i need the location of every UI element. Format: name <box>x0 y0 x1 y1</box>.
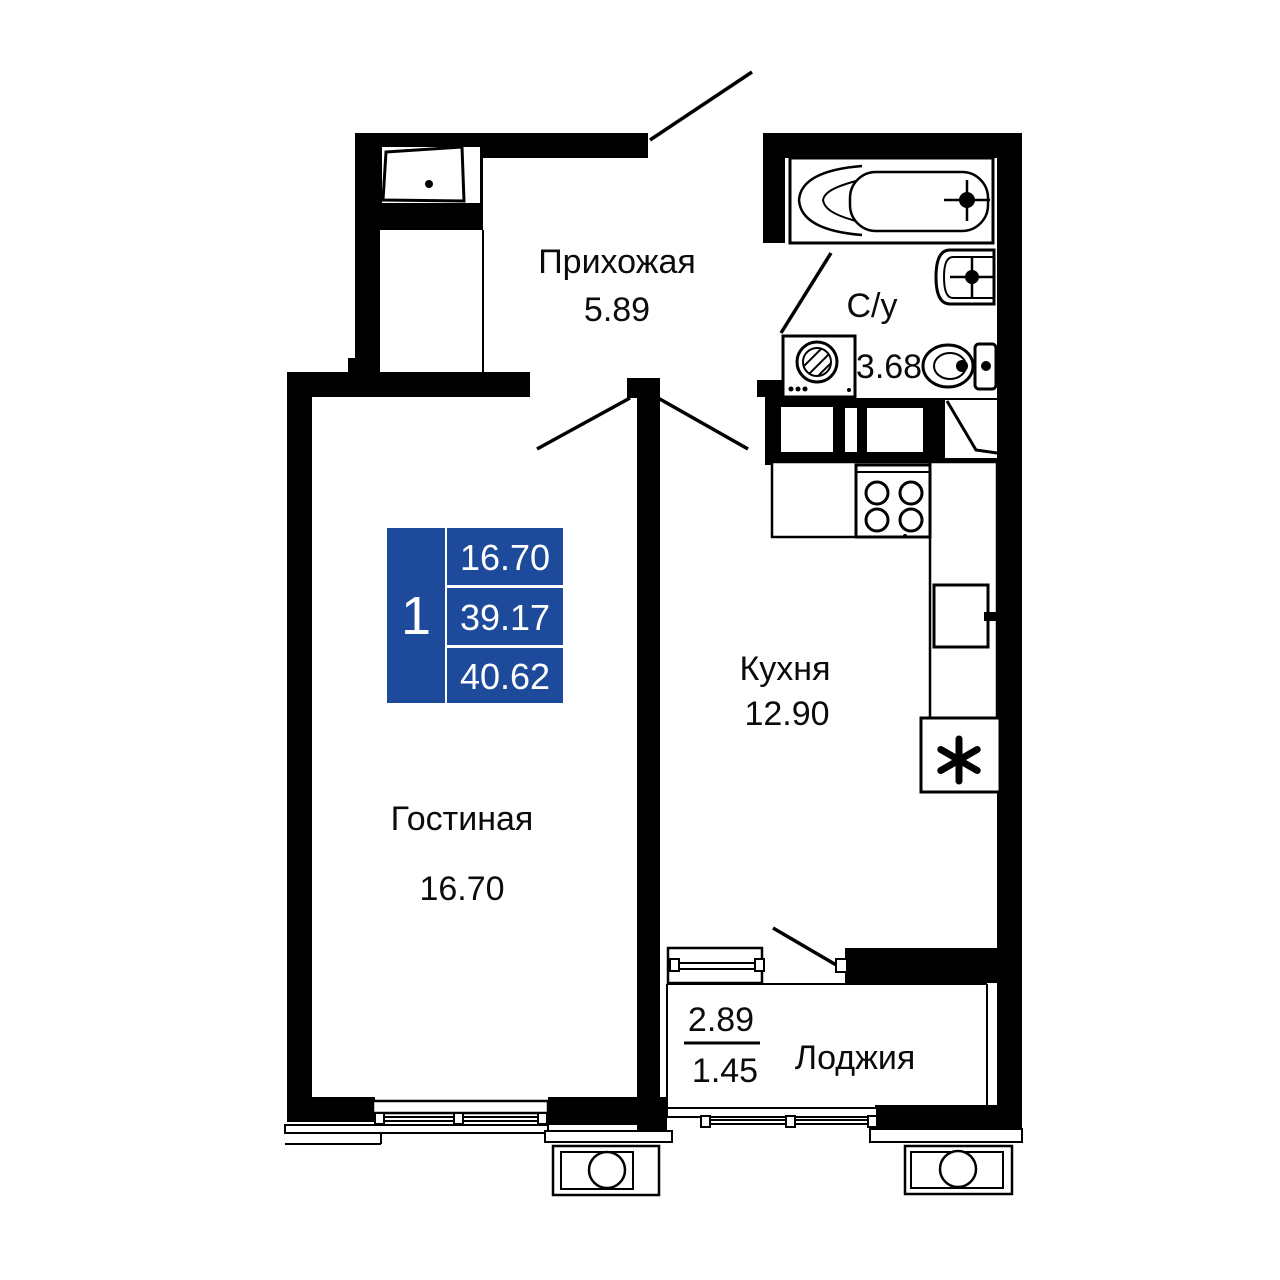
living-door-swing <box>537 398 630 449</box>
shaft-opening <box>781 407 833 452</box>
legend-table: 1 16.70 39.17 40.62 <box>387 528 563 703</box>
fridge-icon: * <box>921 718 1000 792</box>
wall <box>287 1097 375 1122</box>
legend-total-area: 40.62 <box>460 656 550 697</box>
legend-area-without-loggia: 39.17 <box>460 597 550 638</box>
loggia-area-full: 2.89 <box>688 1001 754 1039</box>
washing-machine-icon <box>783 336 855 397</box>
room-area-kitchen: 12.90 <box>744 695 829 733</box>
wall <box>548 1097 637 1125</box>
ac-unit-icon <box>905 1146 1012 1194</box>
ac-unit-icon <box>553 1146 659 1195</box>
loggia-left-window-icon <box>668 948 764 983</box>
loggia-door-hinge <box>836 959 847 972</box>
wall <box>637 1097 667 1130</box>
loggia-bottom-window-icon <box>667 1108 877 1127</box>
living-window-icon <box>373 1101 548 1124</box>
loggia-door-swing <box>773 928 838 966</box>
closet-door-leaf <box>383 147 464 201</box>
room-label-hallway: Прихожая <box>538 243 696 281</box>
legend-living-area: 16.70 <box>460 537 550 578</box>
wall <box>763 133 1022 158</box>
shaft-opening <box>867 408 923 452</box>
loggia-area-reduced: 1.45 <box>692 1052 758 1090</box>
room-label-living: Гостиная <box>391 800 534 838</box>
kitchen-door-swing <box>658 398 748 449</box>
wall <box>763 133 785 243</box>
room-area-living: 16.70 <box>419 870 504 908</box>
wall <box>637 392 660 1125</box>
wall <box>875 1105 1022 1128</box>
room-label-loggia: Лоджия <box>795 1039 915 1077</box>
bathtub-icon <box>790 158 993 243</box>
bathroom-door-swing <box>781 253 831 333</box>
wall <box>355 133 380 395</box>
stove-icon <box>856 465 930 538</box>
room-area-hallway: 5.89 <box>584 291 650 329</box>
floor-plan-page: * <box>0 0 1280 1280</box>
entrance-door-swing <box>650 72 752 140</box>
kitchen-sink-icon <box>934 585 996 647</box>
ventilation-shafts <box>781 400 997 458</box>
floor-plan-svg: * <box>0 0 1280 1280</box>
wall <box>287 372 530 397</box>
wall <box>287 372 312 1122</box>
washbasin-icon <box>936 250 994 304</box>
legend-rooms-count: 1 <box>401 586 431 646</box>
closet-door-knob <box>425 180 433 188</box>
room-area-bathroom: 3.68 <box>856 348 922 386</box>
wall <box>845 948 1022 983</box>
toilet-icon <box>923 344 996 389</box>
room-label-bathroom: С/у <box>847 287 898 325</box>
shaft-opening <box>845 408 857 452</box>
room-label-kitchen: Кухня <box>740 650 831 688</box>
